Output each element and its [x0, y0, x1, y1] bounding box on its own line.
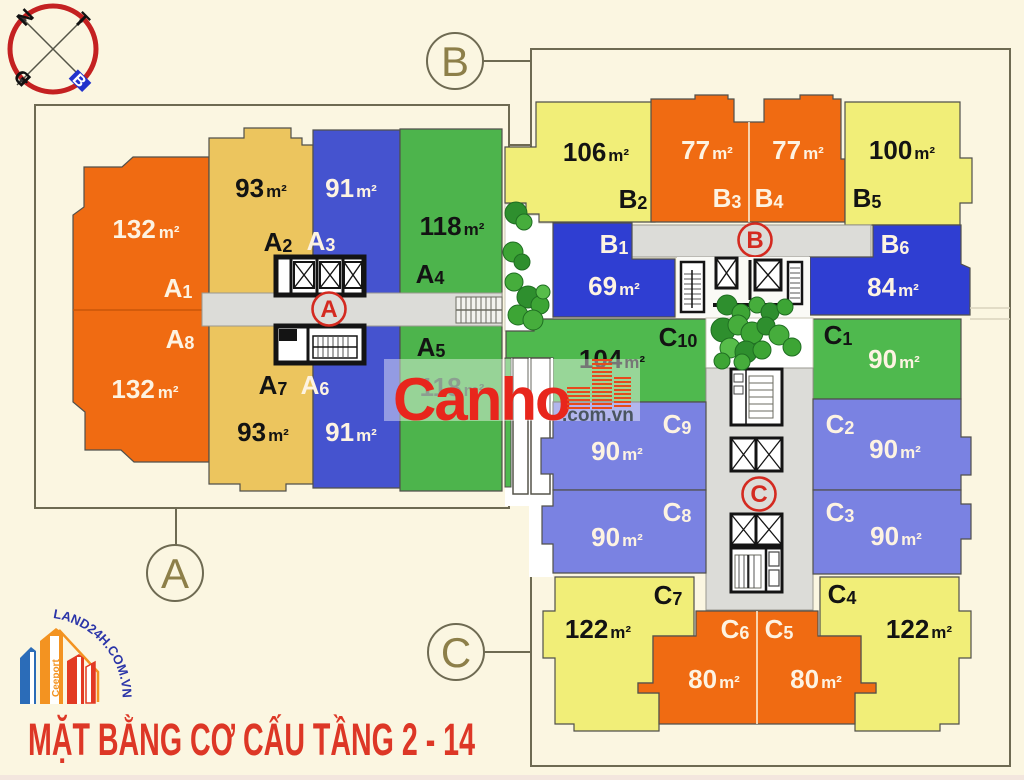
svg-text:MẶT BẰNG CƠ CẤU TẦNG 2 - 14: MẶT BẰNG CƠ CẤU TẦNG 2 - 14 — [28, 714, 475, 765]
svg-text:B: B — [441, 38, 469, 85]
svg-text:Ceeport: Ceeport — [51, 659, 62, 697]
svg-text:C: C — [750, 481, 767, 508]
svg-text:A: A — [161, 550, 189, 597]
svg-text:C: C — [441, 629, 471, 676]
svg-text:Canho: Canho — [393, 366, 570, 433]
svg-text:B: B — [746, 227, 763, 254]
svg-text:A: A — [320, 296, 337, 323]
